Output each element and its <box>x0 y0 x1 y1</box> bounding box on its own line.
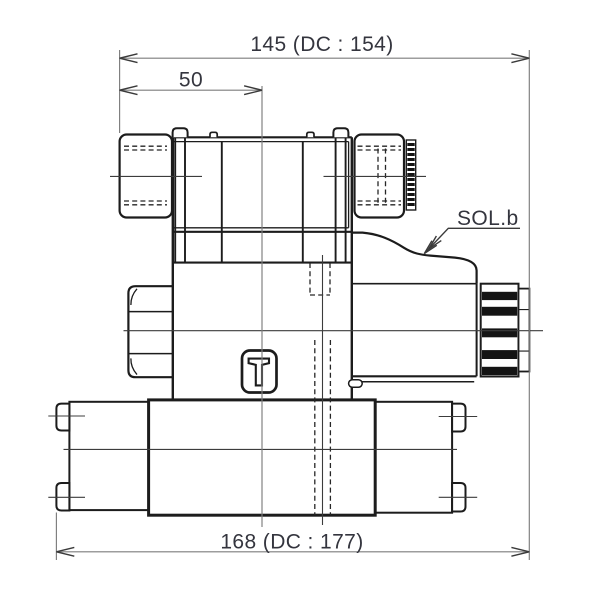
knurl-strip <box>406 140 415 210</box>
sol-b-label: SOL.b <box>457 207 519 230</box>
knob-end-collar <box>519 289 530 372</box>
tube-bump-right <box>307 132 314 137</box>
right-tab-top <box>452 404 465 432</box>
dim-text-overall-bottom: 168 (DC : 177) <box>220 531 363 554</box>
right-flange <box>375 402 465 513</box>
bolt-head-right <box>333 128 348 137</box>
base-plate <box>56 400 465 515</box>
bolt-head-left <box>173 128 188 137</box>
din-connector-knob <box>481 284 530 377</box>
valve-technical-drawing: 145 (DC : 154) 50 168 (DC : 177) SOL.b <box>0 0 600 600</box>
valve-technical-drawing-page: 145 (DC : 154) 50 168 (DC : 177) SOL.b <box>0 0 600 600</box>
dim-text-overall-top: 145 (DC : 154) <box>250 33 393 56</box>
t-port-marker <box>242 351 277 393</box>
left-tab-top <box>56 404 69 431</box>
housing-bottom-tab <box>349 380 363 388</box>
left-flange <box>56 402 148 511</box>
hex-nut <box>128 286 172 377</box>
dim-text-sub-top: 50 <box>179 69 203 92</box>
tube-bump-left <box>210 132 217 137</box>
